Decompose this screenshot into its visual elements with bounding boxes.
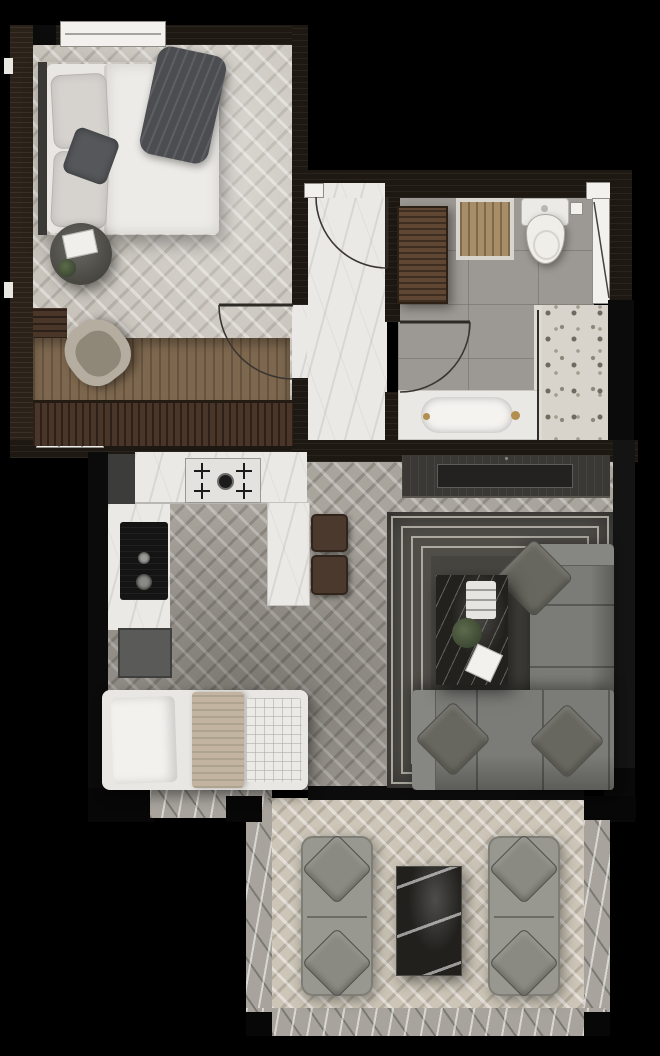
kitchen-island — [267, 502, 310, 606]
balcony-pillow — [302, 928, 373, 999]
balcony-bottom-parapet — [246, 1008, 610, 1036]
coffee-table — [436, 575, 508, 685]
entry-jamb — [304, 183, 324, 198]
bathtub-basin — [421, 397, 513, 433]
bathtub-drain-fitting — [423, 413, 430, 420]
burner — [236, 483, 252, 499]
faucet — [138, 552, 150, 564]
bathtub — [398, 390, 538, 440]
bedroom-door-threshold — [292, 305, 307, 378]
cooktop-knob — [217, 473, 234, 490]
balcony-corner-tr — [584, 796, 636, 820]
bed — [38, 62, 216, 235]
balcony-left-parapet — [246, 798, 272, 1036]
balcony-sofa — [488, 836, 560, 996]
daybed-throw — [192, 692, 244, 788]
balcony-corner-bl — [246, 1012, 272, 1036]
daybed-left-block — [88, 788, 154, 822]
bar-stool — [311, 514, 348, 552]
bathroom-window — [592, 198, 610, 304]
kitchen-tall-unit — [108, 454, 135, 504]
living-right-wall — [613, 440, 635, 790]
bed-headboard — [38, 62, 47, 235]
kitchen-grey-cabinet — [118, 628, 172, 678]
kitchen-sink — [120, 522, 168, 600]
burner — [194, 463, 210, 479]
tv-indicator — [505, 457, 508, 460]
daybed-quilt — [246, 698, 302, 782]
floor-plan — [0, 0, 660, 1056]
daybed-pillow — [111, 696, 178, 784]
plant — [58, 259, 76, 277]
bedroom-right-wall-upper — [292, 25, 308, 305]
dresser — [33, 400, 293, 446]
tv-screen — [437, 464, 573, 488]
bar-stool — [311, 555, 348, 595]
shower-floor — [542, 305, 608, 442]
toilet-seat-ring — [533, 230, 560, 260]
burner — [194, 483, 210, 499]
toilet — [520, 196, 570, 266]
bathtub-faucet — [511, 411, 520, 420]
bathroom-cabinet — [397, 206, 448, 304]
balcony-corner-tl — [226, 796, 262, 822]
bathroom-right-wall-lower — [608, 300, 634, 462]
book — [62, 229, 98, 259]
balcony-table — [396, 866, 462, 976]
sink-drain — [136, 574, 152, 590]
side-table — [50, 223, 112, 285]
balcony-pillow — [489, 928, 560, 999]
table-card — [465, 643, 503, 682]
balcony-corner-br — [584, 1012, 610, 1036]
tv-console — [402, 455, 610, 498]
balcony-right-parapet — [584, 816, 610, 1036]
remote-tray — [466, 581, 496, 619]
flush-plate — [570, 202, 583, 215]
balcony-pillow — [302, 834, 373, 905]
bedroom-left-wall — [10, 25, 33, 458]
window-frame-line — [65, 33, 161, 35]
sofa-seam — [494, 916, 554, 918]
burner — [236, 463, 252, 479]
balcony-sofa — [301, 836, 373, 996]
gas-cooktop — [185, 458, 261, 503]
balcony-pillow — [489, 834, 560, 905]
bedroom-window — [60, 21, 166, 47]
toilet-flush-button — [541, 205, 548, 212]
bathroom-right-wall-upper — [610, 182, 632, 308]
daybed — [102, 690, 308, 790]
wall-marker — [4, 58, 13, 74]
hallway-floor — [305, 183, 387, 458]
wall-marker — [4, 282, 13, 298]
sofa-seam — [307, 916, 367, 918]
bath-mat — [456, 198, 514, 260]
